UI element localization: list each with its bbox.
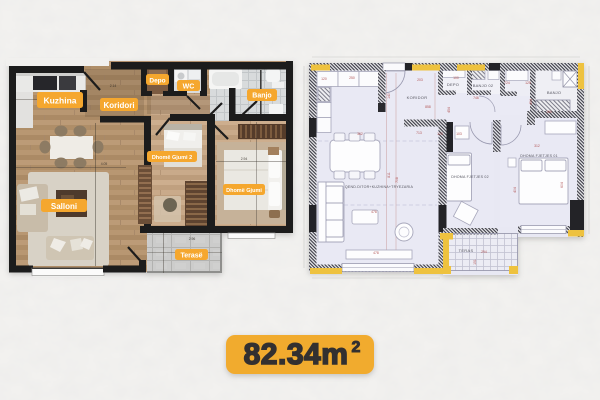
svg-text:4.05: 4.05 xyxy=(101,162,108,166)
svg-text:454: 454 xyxy=(447,107,451,113)
svg-text:BANJO 02: BANJO 02 xyxy=(473,83,494,88)
svg-text:DHOMA FJETJES 01: DHOMA FJETJES 01 xyxy=(520,154,558,158)
svg-text:404: 404 xyxy=(513,187,517,193)
svg-text:BANJO: BANJO xyxy=(547,90,561,95)
svg-text:Dhomë Gjumi 2: Dhomë Gjumi 2 xyxy=(152,155,192,161)
svg-text:Dhomë Gjumi: Dhomë Gjumi xyxy=(226,188,262,194)
svg-text:Salloni: Salloni xyxy=(51,202,77,211)
svg-text:811: 811 xyxy=(387,172,391,178)
svg-text:Depo: Depo xyxy=(149,78,165,85)
svg-text:294: 294 xyxy=(481,250,487,254)
svg-text:478: 478 xyxy=(371,210,377,214)
svg-text:82.34m: 82.34m xyxy=(244,338,349,371)
svg-text:151: 151 xyxy=(473,259,477,265)
svg-text:250: 250 xyxy=(349,76,355,80)
svg-text:160: 160 xyxy=(546,110,552,114)
svg-text:746: 746 xyxy=(473,96,479,100)
svg-text:Kuzhina: Kuzhina xyxy=(43,96,76,106)
svg-text:203: 203 xyxy=(417,78,423,82)
svg-text:123: 123 xyxy=(437,132,443,136)
svg-text:Koridori: Koridori xyxy=(103,101,134,110)
svg-text:2.96: 2.96 xyxy=(189,237,196,241)
svg-text:604: 604 xyxy=(560,182,564,188)
svg-text:WC: WC xyxy=(183,84,195,91)
svg-text:120: 120 xyxy=(321,77,327,81)
svg-text:QEND.DITOR+KUZHINA+TRYEZARIA: QEND.DITOR+KUZHINA+TRYEZARIA xyxy=(345,185,414,189)
svg-text:DEPO: DEPO xyxy=(447,82,459,87)
svg-text:Banjo: Banjo xyxy=(252,93,271,100)
svg-text:TERAS: TERAS xyxy=(459,248,474,253)
svg-text:2.14: 2.14 xyxy=(110,84,117,88)
svg-text:DHOMA FJETJES 02: DHOMA FJETJES 02 xyxy=(451,175,489,179)
svg-text:362: 362 xyxy=(357,132,363,136)
svg-text:103: 103 xyxy=(456,132,462,136)
svg-text:708: 708 xyxy=(395,177,399,183)
svg-text:724: 724 xyxy=(504,81,510,85)
svg-text:478: 478 xyxy=(373,251,379,255)
svg-text:312: 312 xyxy=(534,144,540,148)
svg-text:140: 140 xyxy=(387,93,391,99)
svg-text:713: 713 xyxy=(416,131,422,135)
svg-text:KORIDOR: KORIDOR xyxy=(407,95,428,100)
svg-text:100: 100 xyxy=(453,76,459,80)
svg-text:2: 2 xyxy=(352,339,361,356)
svg-text:Terasë: Terasë xyxy=(180,253,202,260)
svg-text:125: 125 xyxy=(525,81,531,85)
svg-text:858: 858 xyxy=(425,105,431,109)
svg-text:454: 454 xyxy=(529,99,533,105)
svg-text:2.94: 2.94 xyxy=(241,157,248,161)
